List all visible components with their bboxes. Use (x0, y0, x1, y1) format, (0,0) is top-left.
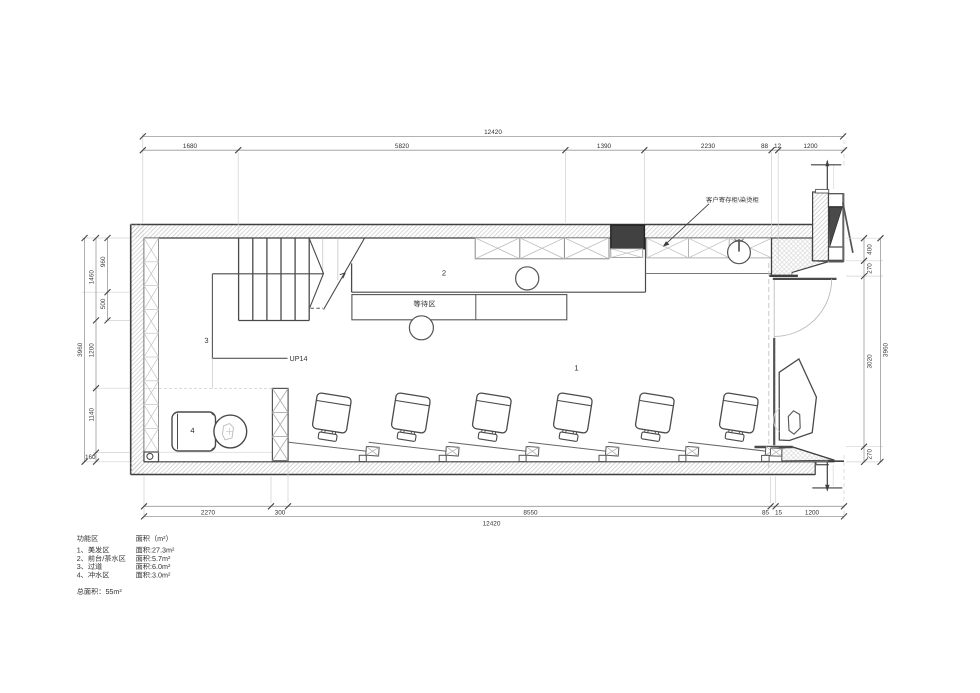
svg-text:4、冲水区: 4、冲水区 (77, 571, 110, 580)
svg-text:1200: 1200 (805, 510, 820, 517)
svg-text:1680: 1680 (183, 143, 198, 150)
svg-text:2270: 2270 (201, 510, 216, 517)
svg-text:4: 4 (190, 426, 194, 435)
svg-text:400: 400 (867, 244, 874, 255)
svg-text:12: 12 (774, 143, 782, 150)
svg-text:300: 300 (275, 510, 286, 517)
svg-text:面积:3.0m²: 面积:3.0m² (136, 571, 171, 580)
svg-text:88: 88 (761, 143, 769, 150)
svg-text:等待区: 等待区 (413, 300, 436, 309)
svg-text:客户寄存柜\染烫柜: 客户寄存柜\染烫柜 (706, 196, 760, 204)
svg-text:960: 960 (100, 256, 107, 267)
svg-text:1: 1 (574, 364, 578, 373)
svg-text:3960: 3960 (883, 342, 890, 357)
svg-text:12420: 12420 (484, 129, 502, 136)
svg-text:270: 270 (867, 263, 874, 274)
svg-text:2: 2 (442, 269, 446, 278)
svg-text:1200: 1200 (803, 143, 818, 150)
svg-text:15: 15 (775, 510, 783, 517)
svg-text:总面积：55m²: 总面积：55m² (77, 587, 123, 596)
svg-text:3960: 3960 (77, 342, 84, 357)
svg-text:面积（m²）: 面积（m²） (136, 534, 173, 543)
svg-text:1460: 1460 (88, 270, 95, 285)
svg-text:2230: 2230 (701, 143, 716, 150)
svg-text:3020: 3020 (867, 354, 874, 369)
svg-text:1390: 1390 (597, 143, 612, 150)
svg-text:5820: 5820 (395, 143, 410, 150)
svg-text:12420: 12420 (483, 521, 501, 528)
svg-text:UP14: UP14 (290, 354, 308, 363)
svg-text:1200: 1200 (88, 343, 95, 358)
svg-text:85: 85 (762, 510, 770, 517)
svg-text:3: 3 (204, 336, 208, 345)
svg-text:功能区: 功能区 (77, 534, 99, 543)
svg-text:1140: 1140 (88, 407, 95, 421)
svg-text:500: 500 (100, 298, 107, 309)
svg-text:270: 270 (867, 449, 874, 460)
svg-text:8550: 8550 (523, 510, 538, 517)
